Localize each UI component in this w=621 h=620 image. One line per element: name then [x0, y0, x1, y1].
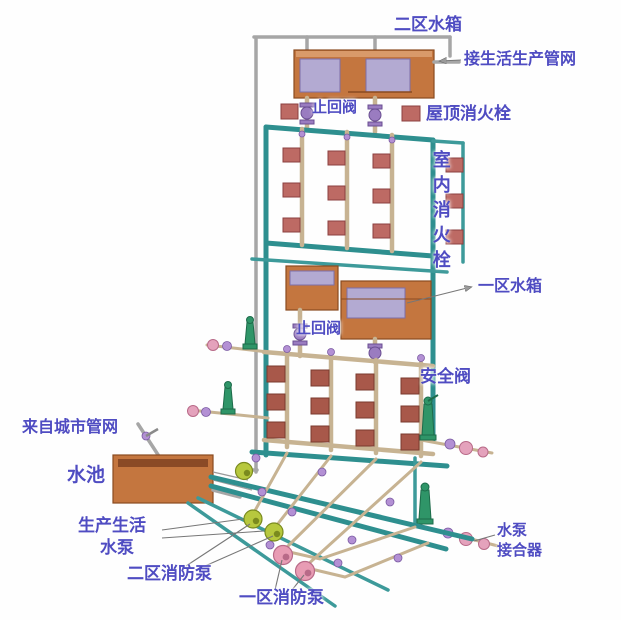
check-valve-icon: [368, 344, 382, 359]
indoor-hydrant-box: [267, 394, 285, 410]
label-from-city-network: 来自城市管网: [22, 418, 118, 436]
domestic-pump-icon: [236, 463, 253, 480]
indoor-hydrant-box: [373, 224, 390, 238]
indoor-hydrant-box: [373, 189, 390, 203]
roof-hydrant-box: [281, 104, 298, 119]
indoor-hydrant-box: [283, 218, 300, 232]
label-zone1-tank: 一区水箱: [478, 277, 542, 295]
indoor-hydrant-box: [267, 366, 285, 382]
indoor-hydrant-box: [311, 370, 329, 386]
label-zone2-tank: 二区水箱: [394, 16, 462, 36]
zone2-water-tank-graphic: [294, 50, 459, 98]
label-indoor-hydrant: 室内消火栓: [429, 150, 450, 275]
indoor-hydrant-box: [401, 406, 419, 422]
safety-valve-icon: [417, 483, 433, 524]
label-zone2-fire-pump: 二区消防泵: [127, 565, 212, 585]
indoor-hydrant-box: [373, 154, 390, 168]
fire-pump-icon: [296, 562, 315, 581]
indoor-hydrant-box: [328, 186, 345, 200]
zone1-water-tank-graphic: [252, 259, 447, 339]
indoor-hydrant-box: [311, 426, 329, 442]
diagram-canvas: 二区水箱 接生活生产管网 止回阀 屋顶消火栓 室内消火栓 一区水箱 止回阀 安全…: [0, 0, 621, 620]
label-pool: 水池: [67, 465, 105, 487]
indoor-hydrant-box: [356, 374, 374, 390]
label-pump-adapter-line2: 接合器: [497, 542, 542, 559]
zone1-riser-grid: [252, 346, 447, 467]
pool-graphic: [113, 455, 252, 503]
indoor-hydrant-box: [356, 402, 374, 418]
indoor-hydrant-box: [283, 148, 300, 162]
indoor-hydrant-box: [283, 183, 300, 197]
label-roof-hydrant: 屋顶消火栓: [426, 105, 511, 125]
indoor-hydrant-box: [401, 434, 419, 450]
indoor-hydrant-box: [401, 378, 419, 394]
indoor-hydrant-box: [328, 221, 345, 235]
indoor-hydrant-box: [356, 430, 374, 446]
fire-pump-icon: [274, 546, 293, 565]
indoor-hydrant-box: [267, 422, 285, 438]
safety-valve-icon: [221, 382, 235, 415]
roof-hydrant-box: [402, 106, 420, 121]
label-zone1-fire-pump: 一区消防泵: [239, 589, 324, 609]
safety-valve-branch: [420, 395, 492, 457]
left-branch-valve-upper: [207, 317, 268, 353]
domestic-pump-icon: [244, 510, 262, 528]
label-pump-adapter-line1: 水泵: [497, 522, 527, 539]
label-domestic-pump-line2: 水泵: [100, 539, 134, 559]
indoor-hydrant-box: [328, 151, 345, 165]
check-valve-icon: [368, 105, 382, 126]
label-safety-valve: 安全阀: [420, 368, 471, 388]
label-to-domestic-production-network: 接生活生产管网: [464, 50, 576, 68]
label-domestic-pump-line1: 生产生活: [78, 517, 146, 537]
indoor-hydrant-box: [311, 398, 329, 414]
label-check-valve-upper: 止回阀: [312, 99, 357, 116]
label-check-valve-lower: 止回阀: [296, 320, 341, 337]
